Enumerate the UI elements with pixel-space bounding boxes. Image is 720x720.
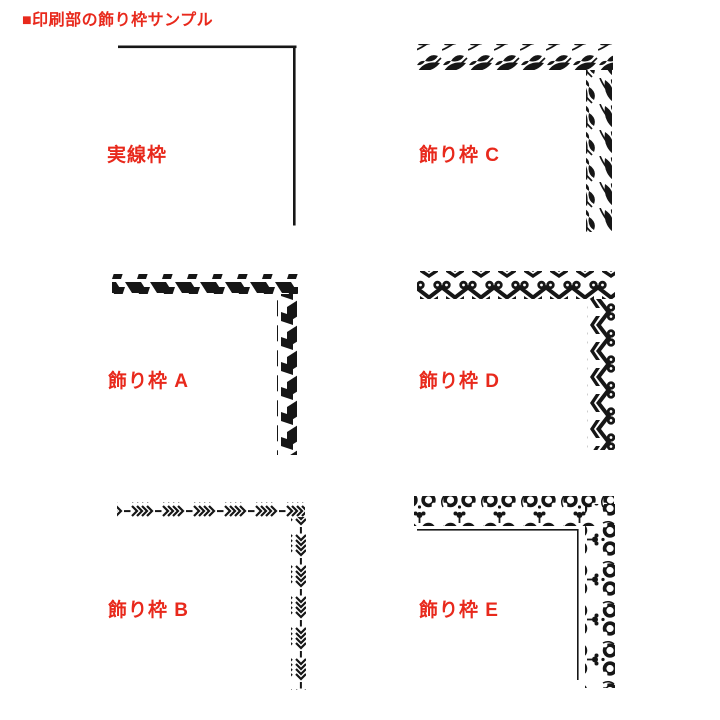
label-frame-a: 飾り枠 A — [108, 366, 189, 393]
leaf-vine-frame-sample — [417, 44, 613, 232]
frame-e-inner-top-rule — [417, 529, 578, 531]
frame-b-right-border — [291, 517, 306, 690]
frame-e-inner-right-rule — [577, 529, 579, 680]
label-solid-frame: 実線枠 — [107, 140, 167, 167]
frame-d-right-border — [587, 299, 615, 450]
twisted-ribbon-frame-sample — [112, 274, 298, 455]
frame-a-right-border — [277, 294, 297, 455]
label-frame-e: 飾り枠 E — [419, 595, 499, 622]
sample-sheet: ■印刷部の飾り枠サンプル — [0, 0, 720, 720]
solid-frame-top-border — [118, 46, 297, 49]
frame-e-top-border — [414, 496, 614, 526]
frame-a-top-border — [112, 274, 298, 294]
frame-b-top-border — [117, 502, 305, 517]
floral-scroll-frame-sample — [414, 496, 615, 688]
solid-frame-right-border — [293, 46, 296, 226]
frame-e-right-border — [585, 504, 615, 688]
label-frame-c: 飾り枠 C — [419, 140, 500, 167]
solid-line-frame-sample — [118, 46, 297, 226]
label-frame-b: 飾り枠 B — [108, 595, 189, 622]
heart-scroll-frame-sample — [417, 271, 615, 450]
frame-c-right-border — [586, 70, 612, 232]
frame-c-top-border — [417, 44, 613, 70]
label-frame-d: 飾り枠 D — [419, 366, 500, 393]
frame-d-top-border — [417, 271, 615, 299]
